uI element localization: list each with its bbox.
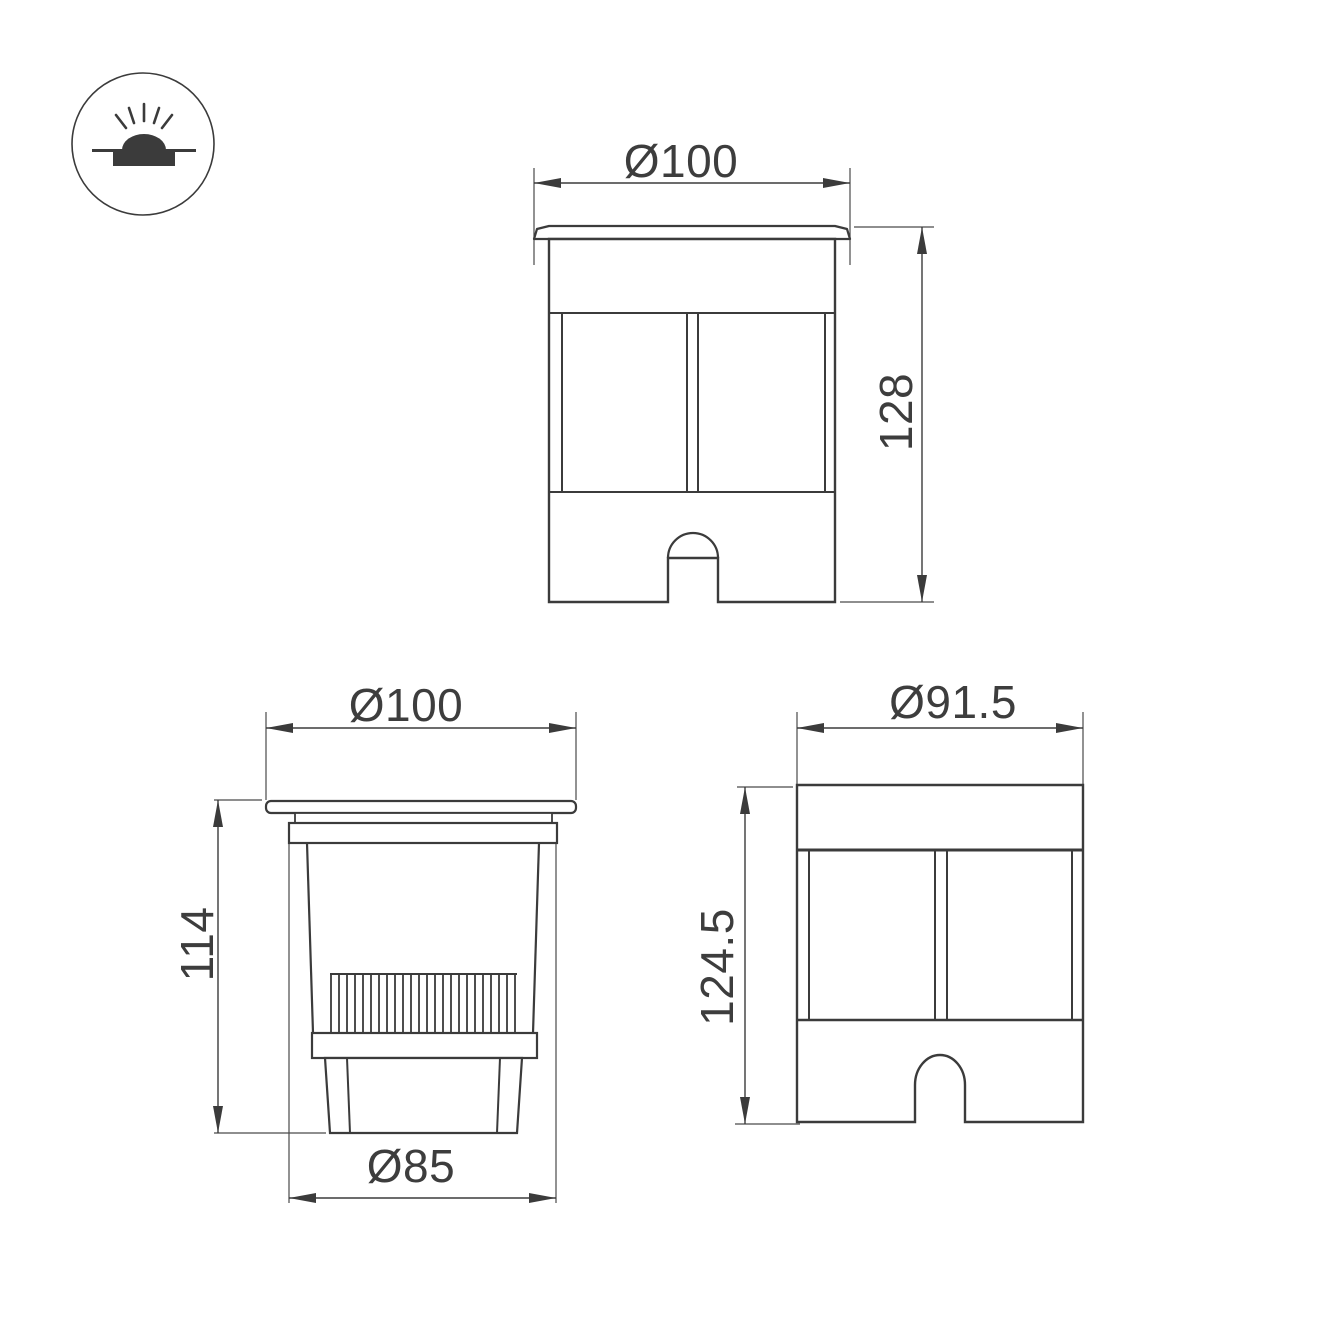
recessed-ground-light-icon xyxy=(72,73,214,215)
drawing-linework xyxy=(0,0,1331,1331)
section-view-drawing xyxy=(214,712,576,1203)
rear-view-height-label: 124.5 xyxy=(690,908,744,1026)
front-view-height-label: 128 xyxy=(869,373,923,451)
front-view-diameter-label: Ø100 xyxy=(624,134,739,188)
rear-view-drawing xyxy=(735,712,1083,1124)
section-view-base-diameter-label: Ø85 xyxy=(367,1139,455,1193)
rear-view-diameter-label: Ø91.5 xyxy=(889,675,1017,729)
section-view-diameter-label: Ø100 xyxy=(349,678,464,732)
section-view-height-label: 114 xyxy=(170,907,224,982)
technical-drawing-sheet: Ø100 128 Ø100 114 Ø85 Ø91.5 124.5 xyxy=(0,0,1331,1331)
